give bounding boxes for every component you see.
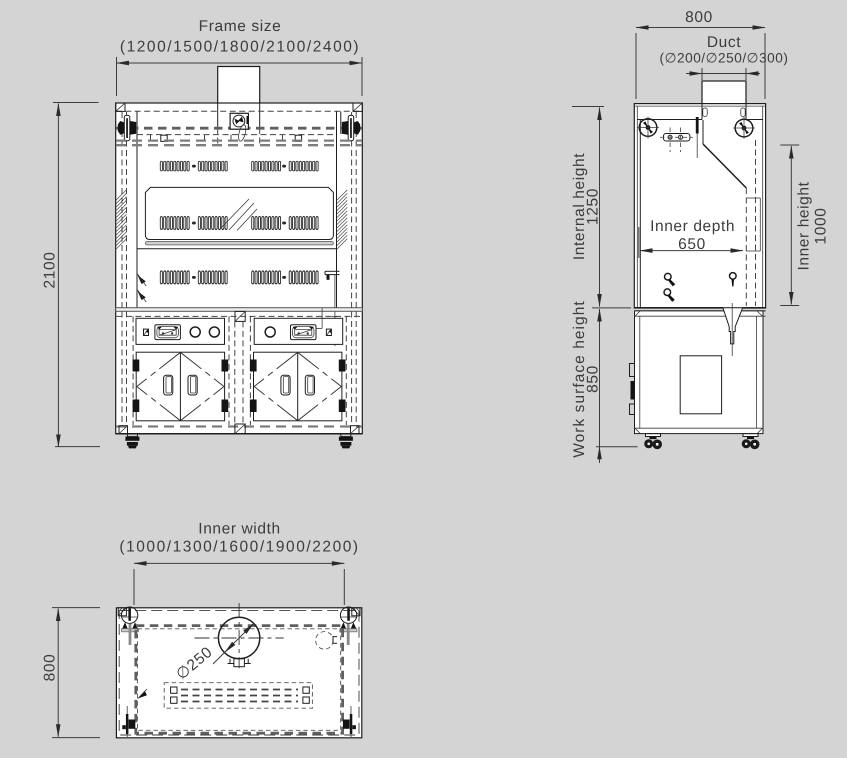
svg-text:850: 850: [585, 365, 602, 393]
svg-text:Inner width: Inner width: [198, 521, 280, 538]
svg-text:Duct: Duct: [707, 34, 741, 51]
svg-text:1000: 1000: [813, 208, 830, 245]
svg-text:2100: 2100: [42, 252, 59, 289]
svg-text:1250: 1250: [585, 188, 602, 225]
svg-text:Frame size: Frame size: [199, 18, 282, 35]
svg-text:Inner depth: Inner depth: [650, 218, 735, 235]
svg-text:(1000/1300/1600/1900/2200): (1000/1300/1600/1900/2200): [119, 539, 359, 556]
svg-text:(∅200/∅250/∅300): (∅200/∅250/∅300): [660, 51, 789, 66]
svg-text:(1200/1500/1800/2100/2400): (1200/1500/1800/2100/2400): [120, 39, 360, 56]
svg-text:800: 800: [685, 9, 713, 26]
svg-text:Inner height: Inner height: [796, 181, 813, 270]
svg-text:800: 800: [42, 654, 59, 682]
